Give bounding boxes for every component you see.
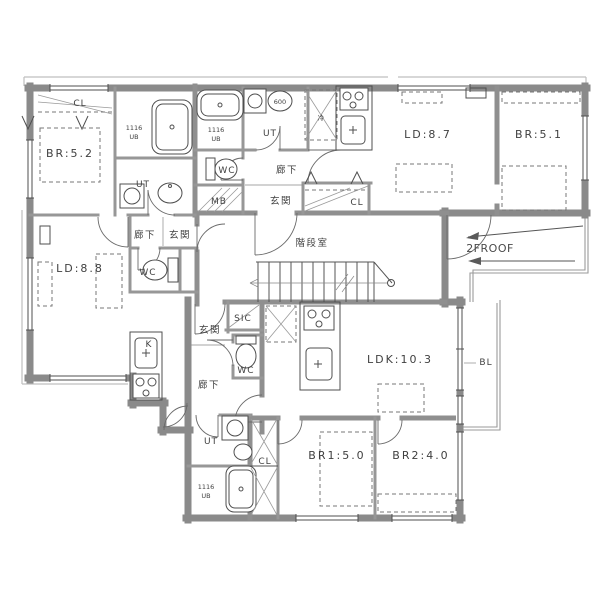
window <box>50 84 108 92</box>
label-west-entrance: 玄関 <box>169 229 191 241</box>
door-north-hall <box>308 150 341 183</box>
label-west-bath-size: 1116 <box>126 124 143 132</box>
label-north-closet: CL <box>350 198 363 208</box>
room-label-ld88: LD:8.8 <box>56 262 104 275</box>
casement-west-kitchen <box>163 403 188 430</box>
label-west-utility: UT <box>136 180 150 190</box>
label-west-bath: UB <box>129 133 138 141</box>
label-north-hallway: 廊下 <box>276 164 298 176</box>
label-south-bath: UB <box>201 492 210 500</box>
stairs <box>250 262 395 302</box>
door-north-entrance <box>255 213 297 255</box>
table-south <box>378 384 424 412</box>
label-west-wc: WC <box>139 268 156 278</box>
roof-outline <box>466 213 588 302</box>
fridge-south <box>266 306 296 342</box>
label-north-fridge: 冷 <box>318 113 325 122</box>
washer-south <box>222 416 248 440</box>
closet-west-bedroom <box>22 95 112 129</box>
label-north-bath: UB <box>211 135 220 143</box>
label-north-entrance: 玄関 <box>270 195 292 207</box>
bed-br51 <box>502 166 566 210</box>
basin-west <box>158 183 182 203</box>
window <box>456 396 464 424</box>
label-south-shoe-closet: SIC <box>234 314 252 324</box>
window <box>398 84 470 92</box>
bathtub-west <box>152 100 192 154</box>
kitchen-north <box>336 86 372 150</box>
label-roof: 2FROOF <box>466 242 514 255</box>
bathtub-north <box>197 90 243 120</box>
label-west-kitchen: K <box>146 340 153 350</box>
shelf-br2 <box>378 494 456 512</box>
window <box>50 374 126 382</box>
eave-lines <box>22 77 586 384</box>
floor-plan: BR:5.2 CL 1116 UB UT 廊下 玄関 WC LD:8.8 K 1… <box>0 0 600 600</box>
window <box>26 258 34 330</box>
window <box>26 140 34 198</box>
washer-north <box>244 89 266 113</box>
door-west-entrance <box>197 224 225 252</box>
label-south-utility: UT <box>204 437 218 447</box>
shelf-br51 <box>502 92 580 103</box>
label-west-hallway: 廊下 <box>134 229 156 241</box>
kitchen-south <box>300 302 340 390</box>
bed-br1 <box>320 432 372 506</box>
intercom-panel <box>40 226 50 244</box>
room-label-ldk103: LDK:10.3 <box>367 353 433 366</box>
label-south-entrance: 玄関 <box>199 324 221 336</box>
door-west-living <box>98 217 128 247</box>
label-stairwell: 階段室 <box>295 237 328 249</box>
label-west-closet: CL <box>73 99 86 109</box>
window <box>581 116 589 180</box>
shelf-west <box>38 262 52 306</box>
label-north-meter-box: MB <box>211 197 227 207</box>
label-south-bath-size: 1116 <box>198 483 215 491</box>
label-south-wc: WC <box>237 366 254 376</box>
window <box>296 514 358 522</box>
toilet-south <box>236 336 256 368</box>
room-label-ld87: LD:8.7 <box>404 128 452 141</box>
table-north <box>396 164 452 192</box>
room-label-br51: BR:5.1 <box>515 128 563 141</box>
bathtub-south <box>226 466 256 512</box>
label-north-basin-width: 600 <box>274 98 286 106</box>
label-south-balcony: BL <box>479 358 492 368</box>
label-south-hallway: 廊下 <box>198 379 220 391</box>
shelf-north <box>402 92 442 103</box>
label-north-utility: UT <box>263 129 277 139</box>
door-south-wc <box>207 340 233 366</box>
window <box>456 432 464 500</box>
door-south-utility <box>196 415 218 437</box>
room-label-br2: BR2:4.0 <box>392 449 449 462</box>
label-north-wc: WC <box>218 166 235 176</box>
basin-south <box>234 444 252 460</box>
window <box>392 514 452 522</box>
door-bedroom1 <box>278 420 302 444</box>
door-bedroom2 <box>378 420 402 444</box>
balcony-sliding-door <box>456 308 464 390</box>
room-label-br52: BR:5.2 <box>46 147 94 160</box>
label-south-closet: CL <box>258 457 271 467</box>
room-label-br1: BR1:5.0 <box>308 449 365 462</box>
label-north-bath-size: 1116 <box>208 126 225 134</box>
